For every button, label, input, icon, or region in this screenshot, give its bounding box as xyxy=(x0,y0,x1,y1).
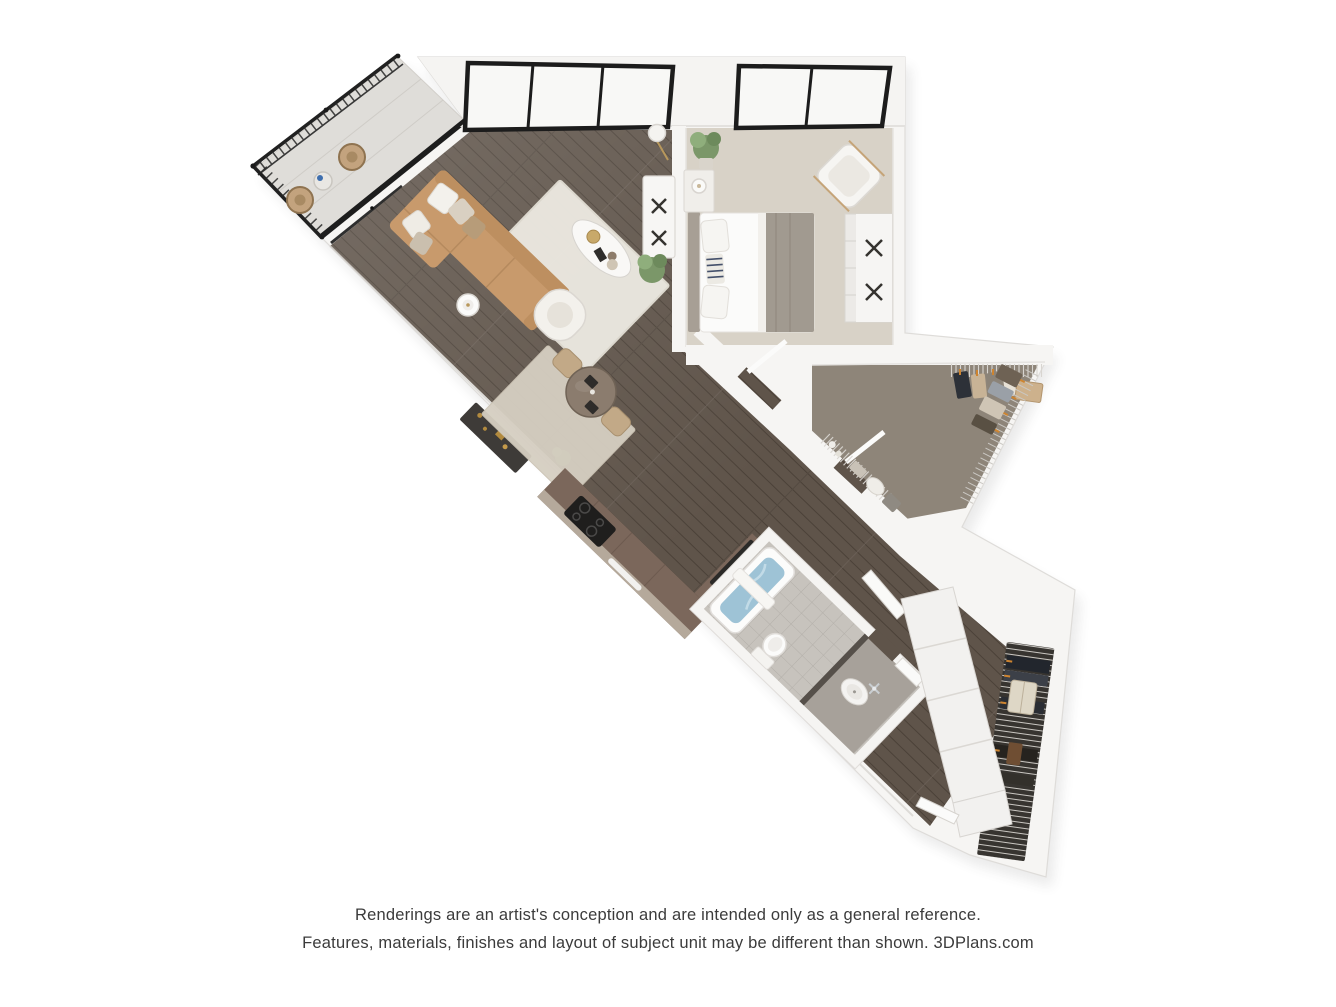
bedroom-window xyxy=(736,66,890,128)
patio-cup xyxy=(317,175,323,181)
wicker-chair-cushion xyxy=(295,195,306,206)
bed-blanket xyxy=(764,213,814,332)
striped-pillow xyxy=(705,253,725,284)
door-handle xyxy=(370,206,374,210)
side-table xyxy=(457,294,479,316)
disclaimer-line-2: Features, materials, finishes and layout… xyxy=(0,929,1336,957)
disclaimer-line-1: Renderings are an artist's conception an… xyxy=(0,901,1336,929)
media-console xyxy=(643,176,675,258)
disclaimer-text: Renderings are an artist's conception an… xyxy=(0,901,1336,957)
patio-table xyxy=(314,172,332,190)
floor-plan-svg xyxy=(0,0,1336,1002)
living-room-window xyxy=(465,63,673,130)
sheet-fold xyxy=(758,213,766,332)
dresser xyxy=(845,214,892,322)
floor-plan-page: { "page": { "background": "#ffffff" }, "… xyxy=(0,0,1336,1002)
wicker-chair-cushion xyxy=(347,152,358,163)
headboard xyxy=(688,212,700,332)
floor-plan-rendering xyxy=(0,0,1336,1002)
